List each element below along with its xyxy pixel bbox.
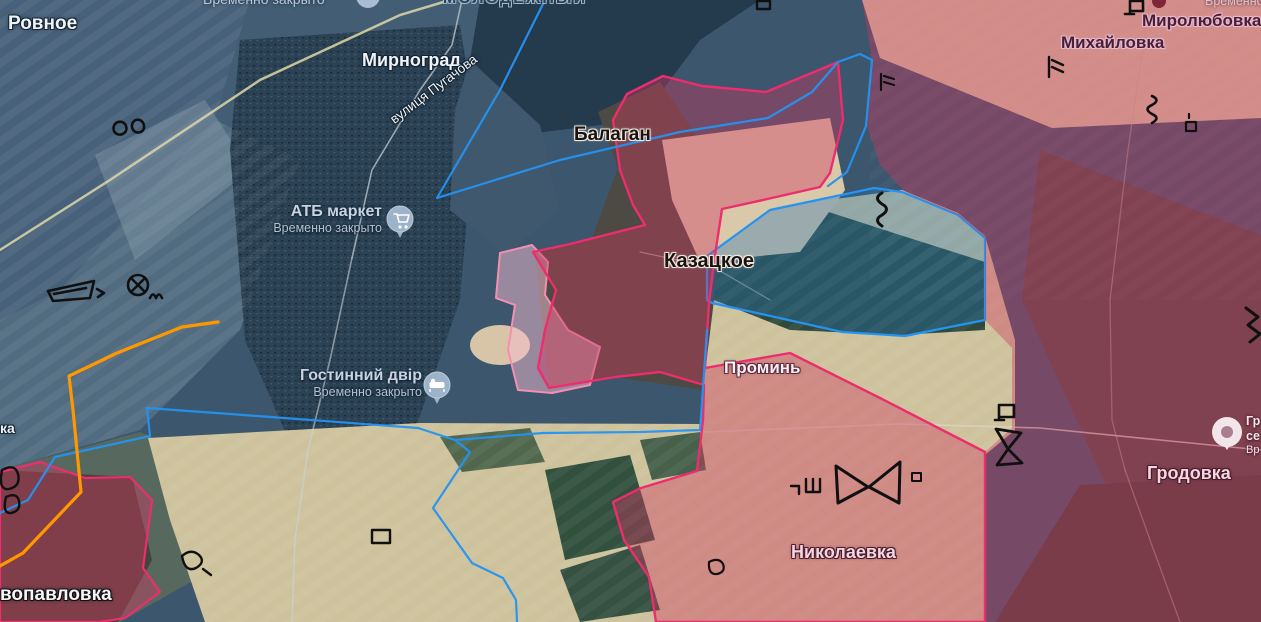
settlement-label-mirnograd: Мирноград: [362, 51, 461, 70]
atb-title: АТБ маркет: [260, 203, 382, 221]
top-poi-status-partial: Временно закрыто: [203, 0, 325, 7]
map-canvas[interactable]: Ровное МОЛОДЕЖНЫЙ Временно закрыто Мирно…: [0, 0, 1261, 622]
settlement-label-kazatskoe: Казацкое: [664, 251, 754, 272]
hostel-title: Гостинний двір: [282, 367, 422, 385]
atb-poi-label[interactable]: АТБ маркет Временно закрыто: [260, 203, 382, 235]
top-right-poi-status-partial: Временно за: [1205, 0, 1261, 8]
map-layers: [0, 0, 1261, 622]
settlement-label-grodovka: Гродовка: [1147, 464, 1231, 483]
hostel-poi-label[interactable]: Гостинний двір Временно закрыто: [282, 367, 422, 399]
settlement-label-balagan: Балаган: [574, 125, 651, 145]
grodovka-poi-text-line2: се: [1246, 429, 1260, 443]
settlement-label-nikolaevka: Николаевка: [791, 543, 896, 562]
hostel-status: Временно закрыто: [282, 385, 422, 399]
settlement-label-mirolyubovka: Миролюбовка: [1142, 12, 1261, 30]
district-label-molodezhny: МОЛОДЕЖНЫЙ: [443, 0, 587, 8]
grodovka-poi-text-line3: Вр: [1246, 444, 1259, 456]
settlement-label-rovnoe: Ровное: [8, 14, 77, 34]
grodovka-poi-text-line1: Гр: [1246, 414, 1260, 428]
settlement-label-vopavlovka-partial: вопавловка: [0, 585, 112, 605]
place-icon: [1221, 426, 1233, 438]
settlement-label-promin: Проминь: [724, 359, 801, 377]
settlement-label-ka-partial: ка: [0, 421, 15, 436]
atb-status: Временно закрыто: [260, 221, 382, 235]
settlement-label-mikhailovka: Михайловка: [1061, 34, 1164, 52]
